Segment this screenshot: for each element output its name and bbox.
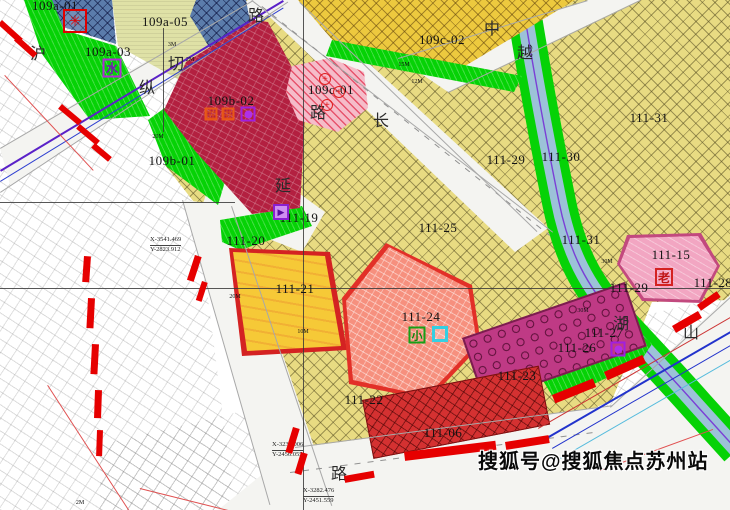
road-name-char: 路 xyxy=(248,2,264,26)
road-marking-red-dash xyxy=(94,390,102,418)
survey-coordinate: X-3282.476Y-2451.559 xyxy=(303,487,334,504)
parcel-label-111-29: 111-29 xyxy=(610,280,649,296)
hospital-cross-icon-2: + xyxy=(333,86,345,98)
road-name-char: 纵 xyxy=(139,74,155,98)
water-facility-icon: 水 xyxy=(103,59,122,78)
parcel-label-109b-01: 109b-01 xyxy=(149,153,196,169)
kindergarten-box-icon xyxy=(432,326,448,342)
parcel-label-111-31: 111-31 xyxy=(562,232,601,248)
parcel-label-111-24: 111-24 xyxy=(402,309,441,325)
parcel-label-111-20: 111-20 xyxy=(227,233,266,249)
dimension-marker: 30M xyxy=(577,308,588,314)
parcel-label-111-25: 111-25 xyxy=(419,220,458,236)
road-name-char: 越 xyxy=(517,39,533,63)
parcel-label-111-23: 111-23 xyxy=(498,368,537,384)
hospital-cross-icon-1: + xyxy=(319,73,331,85)
survey-y: Y-2451.559 xyxy=(303,497,334,505)
reference-line-vertical xyxy=(303,0,304,510)
hospital-cross-icon-3: + xyxy=(321,99,333,111)
parcel-label-111-22: 111-22 xyxy=(345,392,384,408)
parcel-label-111-21: 111-21 xyxy=(276,281,315,297)
parcel-label-111-26: 111-26 xyxy=(558,340,597,356)
dimension-marker: 3M xyxy=(168,42,176,48)
survey-x: X-3282.476 xyxy=(303,487,334,497)
parcel-label-111-29: 111-29 xyxy=(487,152,526,168)
parcel-label-111-31: 111-31 xyxy=(630,110,669,126)
road-marking-red-dash xyxy=(96,430,103,456)
dimension-marker: 2M xyxy=(76,500,84,506)
road-name-char: 延 xyxy=(275,172,291,196)
parcel-label-111-30: 111-30 xyxy=(542,149,581,165)
orange-facility-icon-2 xyxy=(222,108,235,121)
watermark: 搜狐号@搜狐焦点苏州站 xyxy=(478,445,709,474)
dimension-marker: 30M xyxy=(601,259,612,265)
road-name-char: 长 xyxy=(373,107,389,131)
road-name-char: 切 xyxy=(168,50,184,74)
primary-school-icon: 小 xyxy=(409,327,426,344)
parcel-label-111-28: 111-28 xyxy=(694,275,730,291)
purple-dot-facility-icon xyxy=(241,107,256,122)
parcel-label-109c-01: 109c-01 xyxy=(308,82,354,98)
purple-dot-facility-icon-2 xyxy=(611,342,626,357)
elderly-care-icon: 老 xyxy=(655,268,673,286)
dimension-marker: 10M xyxy=(297,329,308,335)
survey-y: Y-2823.912 xyxy=(150,246,181,254)
dimension-marker: 15M xyxy=(398,62,409,68)
road-name-char: 湖 xyxy=(613,310,629,334)
orange-facility-icon-1 xyxy=(205,108,218,121)
survey-coordinate: X-3541.469Y-2823.912 xyxy=(150,236,181,253)
parcel-label-109c-02: 109c-02 xyxy=(419,32,465,48)
dimension-marker: 20M xyxy=(152,134,163,140)
utility-wheel-icon: ✳ xyxy=(63,9,87,33)
dimension-marker: 12M xyxy=(411,79,422,85)
planning-map: 109a-01109a-03109a-05109b-01109b-02109c-… xyxy=(0,0,730,510)
dimension-marker: 20M xyxy=(229,294,240,300)
parcel-label-109a-05: 109a-05 xyxy=(142,14,188,30)
parcel-label-111-06: 111-06 xyxy=(424,425,463,441)
purple-facility-icon: ▶ xyxy=(273,204,289,220)
road-name-char: 中 xyxy=(484,15,500,39)
dimension-marker: 2M xyxy=(186,57,194,63)
survey-x: X-3541.469 xyxy=(150,236,181,246)
parcel-label-111-15: 111-15 xyxy=(652,247,691,263)
